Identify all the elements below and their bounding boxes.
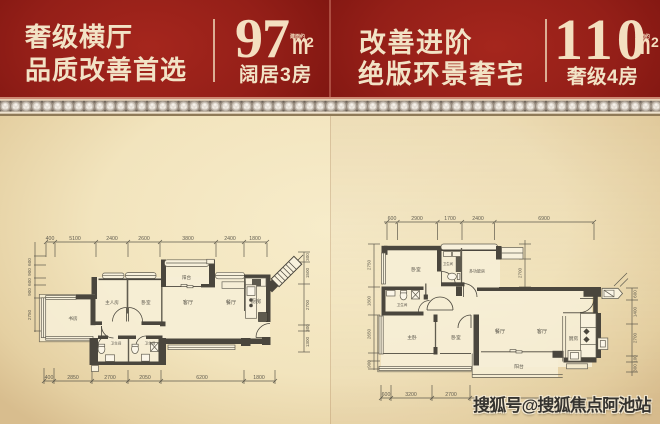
svg-text:阳台: 阳台 bbox=[514, 363, 524, 370]
svg-text:100: 100 bbox=[633, 355, 638, 363]
svg-text:2400: 2400 bbox=[106, 236, 118, 242]
svg-text:2400: 2400 bbox=[472, 216, 484, 222]
svg-text:2750: 2750 bbox=[367, 259, 372, 270]
svg-text:1800: 1800 bbox=[249, 236, 261, 242]
svg-text:400: 400 bbox=[45, 375, 54, 381]
svg-text:1800: 1800 bbox=[367, 295, 372, 306]
svg-text:卧室: 卧室 bbox=[451, 334, 461, 341]
svg-text:3800: 3800 bbox=[182, 236, 194, 242]
svg-text:卧室: 卧室 bbox=[411, 266, 421, 273]
svg-text:2400: 2400 bbox=[224, 236, 236, 242]
svg-text:阳台: 阳台 bbox=[182, 274, 192, 281]
svg-text:1400: 1400 bbox=[633, 306, 638, 317]
svg-text:1700: 1700 bbox=[444, 216, 456, 222]
svg-text:600: 600 bbox=[27, 278, 32, 286]
svg-text:900: 900 bbox=[27, 268, 32, 276]
svg-text:2700: 2700 bbox=[104, 375, 116, 381]
svg-text:900: 900 bbox=[367, 360, 372, 368]
svg-text:300: 300 bbox=[305, 253, 310, 261]
svg-text:300: 300 bbox=[633, 364, 638, 372]
svg-text:2850: 2850 bbox=[67, 375, 79, 381]
svg-text:卫生间: 卫生间 bbox=[145, 341, 156, 346]
svg-text:主人房: 主人房 bbox=[105, 299, 119, 306]
svg-text:600: 600 bbox=[388, 216, 397, 222]
svg-text:1500: 1500 bbox=[305, 267, 310, 278]
svg-text:2700: 2700 bbox=[445, 392, 457, 398]
svg-text:5100: 5100 bbox=[69, 236, 81, 242]
svg-text:2700: 2700 bbox=[518, 267, 523, 278]
svg-text:主卧: 主卧 bbox=[407, 334, 417, 341]
svg-text:2700: 2700 bbox=[305, 299, 310, 310]
svg-text:餐厅: 餐厅 bbox=[226, 298, 236, 306]
svg-text:2050: 2050 bbox=[139, 375, 151, 381]
svg-text:2900: 2900 bbox=[411, 216, 423, 222]
svg-text:600: 600 bbox=[27, 258, 32, 266]
svg-text:书房: 书房 bbox=[68, 315, 78, 322]
svg-text:卧室: 卧室 bbox=[141, 299, 151, 306]
svg-text:卫生间: 卫生间 bbox=[397, 302, 408, 307]
svg-text:厨房: 厨房 bbox=[251, 297, 261, 305]
svg-text:2700: 2700 bbox=[633, 332, 638, 343]
svg-text:客厅: 客厅 bbox=[183, 298, 193, 306]
svg-text:600: 600 bbox=[382, 392, 391, 398]
svg-text:400: 400 bbox=[46, 236, 55, 242]
svg-text:2650: 2650 bbox=[367, 328, 372, 339]
svg-text:卫生间: 卫生间 bbox=[443, 261, 454, 266]
svg-text:6200: 6200 bbox=[196, 375, 208, 381]
svg-text:600: 600 bbox=[633, 290, 638, 298]
svg-text:1800: 1800 bbox=[253, 375, 265, 381]
svg-text:2750: 2750 bbox=[27, 309, 32, 320]
svg-text:1300: 1300 bbox=[305, 336, 310, 347]
svg-text:餐厅: 餐厅 bbox=[495, 327, 505, 335]
svg-text:厨房: 厨房 bbox=[569, 335, 579, 342]
svg-text:300: 300 bbox=[305, 324, 310, 332]
svg-text:6900: 6900 bbox=[538, 216, 550, 222]
svg-text:多功能房: 多功能房 bbox=[469, 268, 485, 274]
svg-text:卫生间: 卫生间 bbox=[111, 341, 122, 346]
svg-text:900: 900 bbox=[27, 288, 32, 296]
svg-text:2600: 2600 bbox=[138, 236, 150, 242]
svg-text:客厅: 客厅 bbox=[537, 327, 547, 335]
svg-text:3200: 3200 bbox=[405, 392, 417, 398]
